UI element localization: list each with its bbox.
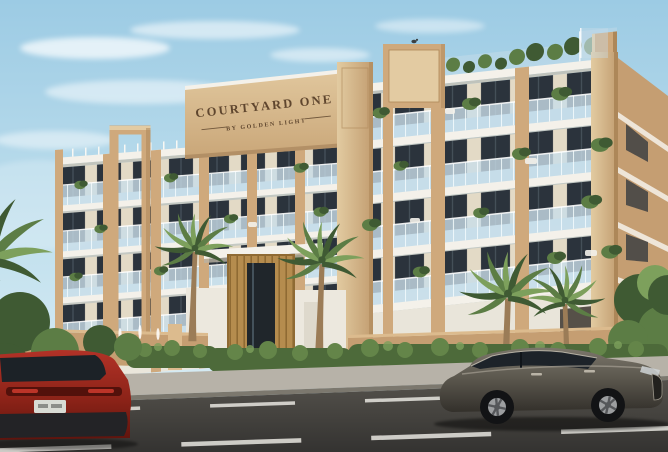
rear-window <box>0 355 106 382</box>
taillight <box>12 389 38 393</box>
rear-bumper <box>0 412 128 438</box>
red-suv <box>0 350 138 450</box>
cloud <box>375 19 485 33</box>
door-reflection <box>252 263 254 351</box>
cloud <box>0 131 115 149</box>
cloud <box>20 37 170 59</box>
plate-text <box>51 404 62 408</box>
cloud <box>270 48 370 62</box>
cloud <box>130 21 300 39</box>
car-shadow <box>434 417 668 431</box>
front-wheel <box>591 388 625 422</box>
b-pillar <box>520 352 522 368</box>
taillight <box>88 389 114 393</box>
scene-architectural-render: COURTYARD ONE BY GOLDEN LIGHT <box>0 0 668 452</box>
door-handle <box>584 370 595 373</box>
fountain-jet <box>156 328 159 340</box>
door-handle <box>531 373 542 376</box>
fountain-jet <box>138 325 141 339</box>
rendering-canvas: COURTYARD ONE BY GOLDEN LIGHT <box>0 0 668 452</box>
entrance-glass-door <box>247 263 275 351</box>
plate-text <box>38 404 48 408</box>
rear-wheel <box>480 390 514 424</box>
